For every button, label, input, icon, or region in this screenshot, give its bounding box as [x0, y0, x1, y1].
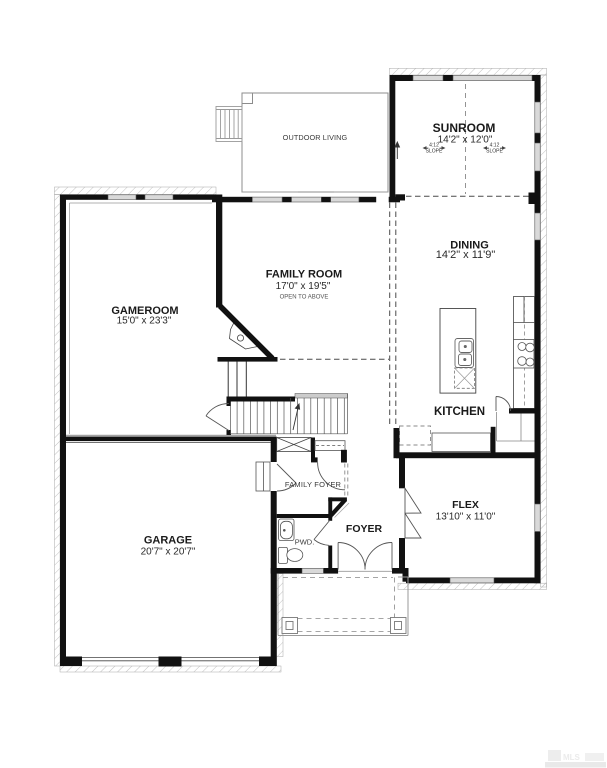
svg-text:13'10" x 11'0": 13'10" x 11'0"	[436, 512, 496, 523]
svg-text:OPEN TO ABOVE: OPEN TO ABOVE	[280, 295, 329, 301]
svg-text:14'2" x 12'0": 14'2" x 12'0"	[438, 135, 493, 146]
svg-text:PWD.: PWD.	[295, 537, 315, 546]
svg-text:SLOPE: SLOPE	[486, 148, 503, 154]
svg-text:MLS: MLS	[563, 753, 581, 762]
svg-text:FAMILY FOYER: FAMILY FOYER	[285, 480, 342, 489]
svg-text:14'2" x 11'9": 14'2" x 11'9"	[436, 249, 496, 261]
svg-text:15'0" x 23'3": 15'0" x 23'3"	[117, 316, 172, 327]
svg-text:20'7" x 20'7": 20'7" x 20'7"	[141, 547, 196, 558]
svg-text:KITCHEN: KITCHEN	[434, 406, 485, 418]
svg-text:SLOPE: SLOPE	[426, 148, 443, 154]
svg-text:FAMILY ROOM: FAMILY ROOM	[266, 269, 342, 281]
svg-text:SUNROOM: SUNROOM	[433, 121, 496, 135]
svg-text:FLEX: FLEX	[452, 499, 479, 511]
svg-text:FOYER: FOYER	[346, 523, 383, 535]
svg-text:17'0" x 19'5": 17'0" x 19'5"	[276, 281, 331, 292]
svg-text:GARAGE: GARAGE	[144, 535, 192, 547]
svg-text:OUTDOOR LIVING: OUTDOOR LIVING	[283, 133, 348, 142]
